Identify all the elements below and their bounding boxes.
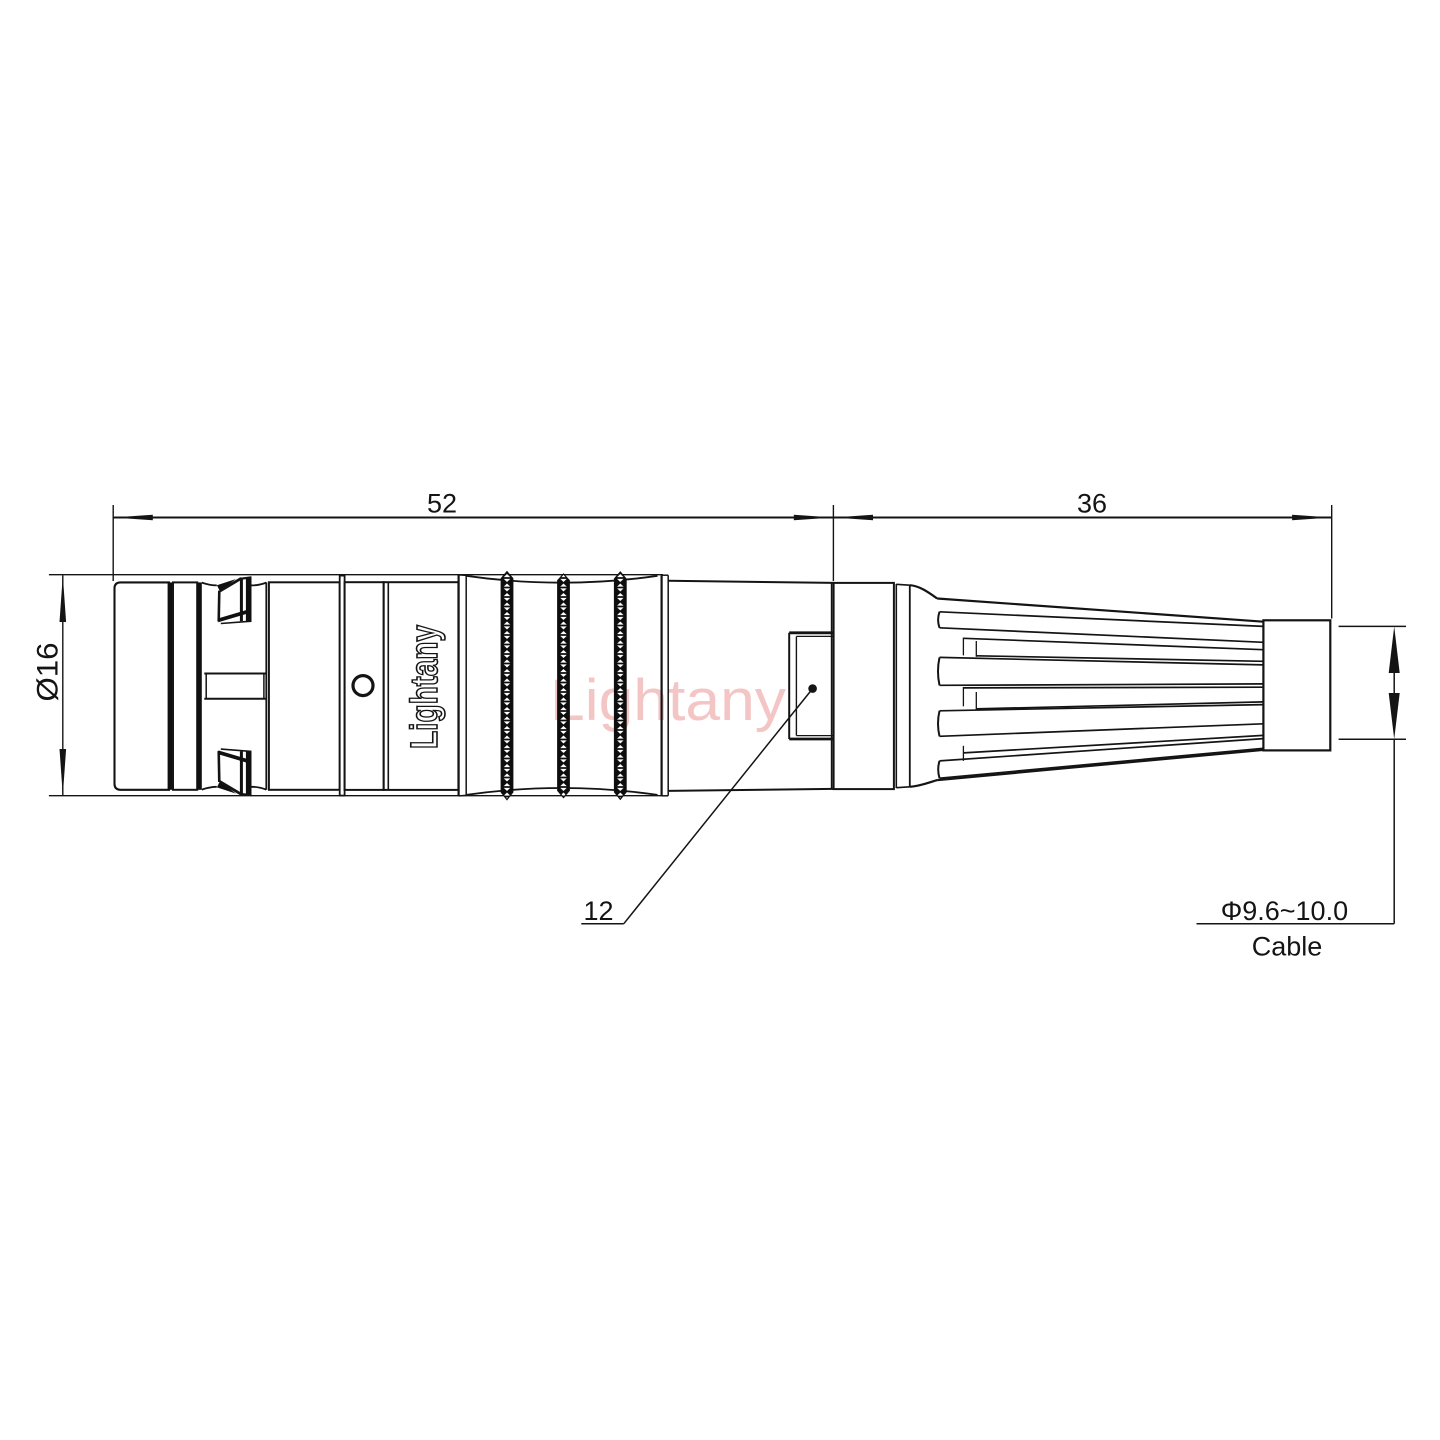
svg-text:52: 52 (427, 489, 457, 519)
svg-text:Φ9.6~10.0: Φ9.6~10.0 (1221, 896, 1348, 926)
svg-text:Ø16: Ø16 (32, 643, 65, 702)
svg-text:Lightany: Lightany (404, 625, 446, 749)
svg-text:Cable: Cable (1252, 932, 1323, 962)
svg-text:12: 12 (583, 896, 613, 926)
svg-text:36: 36 (1077, 489, 1107, 519)
